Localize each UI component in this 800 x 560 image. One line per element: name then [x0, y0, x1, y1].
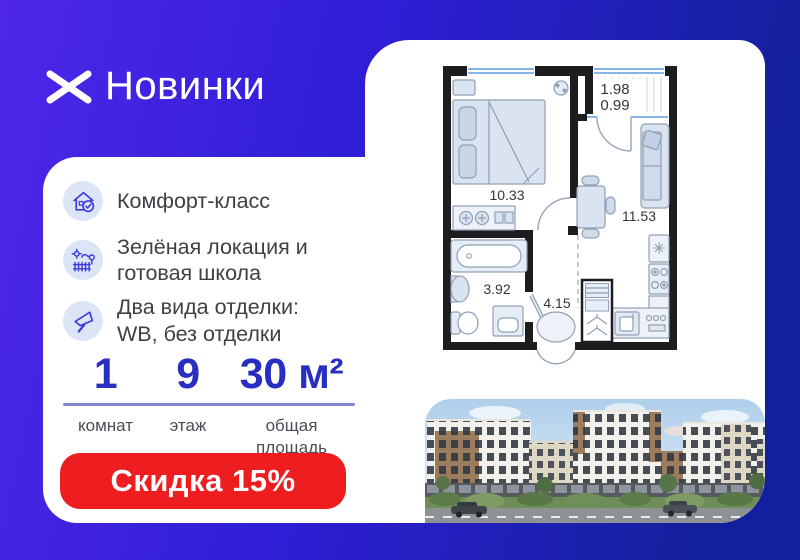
promo-banner: { "colors": { "bg_start": "#4e27ea", "bg…	[0, 0, 800, 560]
stat-floor-value: 9	[148, 353, 228, 396]
feature-comfort-class: Комфорт-класс	[63, 181, 342, 221]
apartment-stats: 1 9 30 м² комнат этаж общая площадь	[63, 353, 355, 459]
floorplan: 1.98 0.99 10.33 11.53 3.92 4.15	[435, 56, 695, 366]
brand-logo: Новинки	[46, 64, 265, 109]
trowel-icon	[63, 301, 103, 341]
stat-rooms-value: 1	[63, 353, 148, 396]
house-check-icon	[63, 181, 103, 221]
stats-divider	[63, 403, 355, 406]
balcony-area-label: 0.99	[600, 97, 629, 114]
feature-text: Зелёная локация и готовая школа	[117, 234, 342, 286]
bathroom-area-label: 3.92	[483, 281, 510, 297]
feature-green-location: Зелёная локация и готовая школа	[63, 234, 342, 286]
feature-finishing: Два вида отделки: WB, без отделки	[63, 294, 342, 346]
building-render	[425, 399, 765, 523]
living-area-label: 11.53	[622, 208, 656, 224]
feature-list: Комфорт-класс Зелёная локация и готовая …	[63, 181, 342, 347]
feature-text: Два вида отделки: WB, без отделки	[117, 294, 342, 346]
hall-area-label: 4.15	[543, 295, 570, 311]
garden-icon	[63, 240, 103, 280]
balcony-width-label: 1.98	[600, 81, 629, 98]
x-mark-icon	[46, 67, 92, 107]
building-render-photo	[425, 399, 765, 523]
stat-area-value: 30 м²	[228, 353, 355, 396]
feature-text: Комфорт-класс	[117, 188, 342, 214]
discount-button[interactable]: Скидка 15%	[60, 453, 346, 509]
info-card: Комфорт-класс Зелёная локация и готовая …	[43, 157, 373, 523]
bedroom-area-label: 10.33	[489, 187, 524, 203]
brand-name: Новинки	[105, 64, 265, 109]
